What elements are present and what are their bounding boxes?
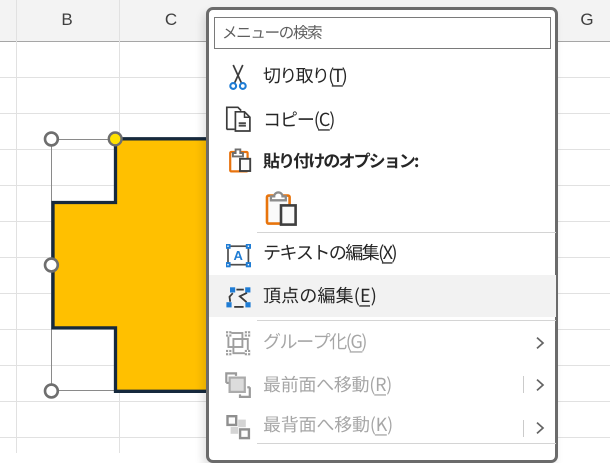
svg-text:A: A bbox=[234, 248, 244, 263]
